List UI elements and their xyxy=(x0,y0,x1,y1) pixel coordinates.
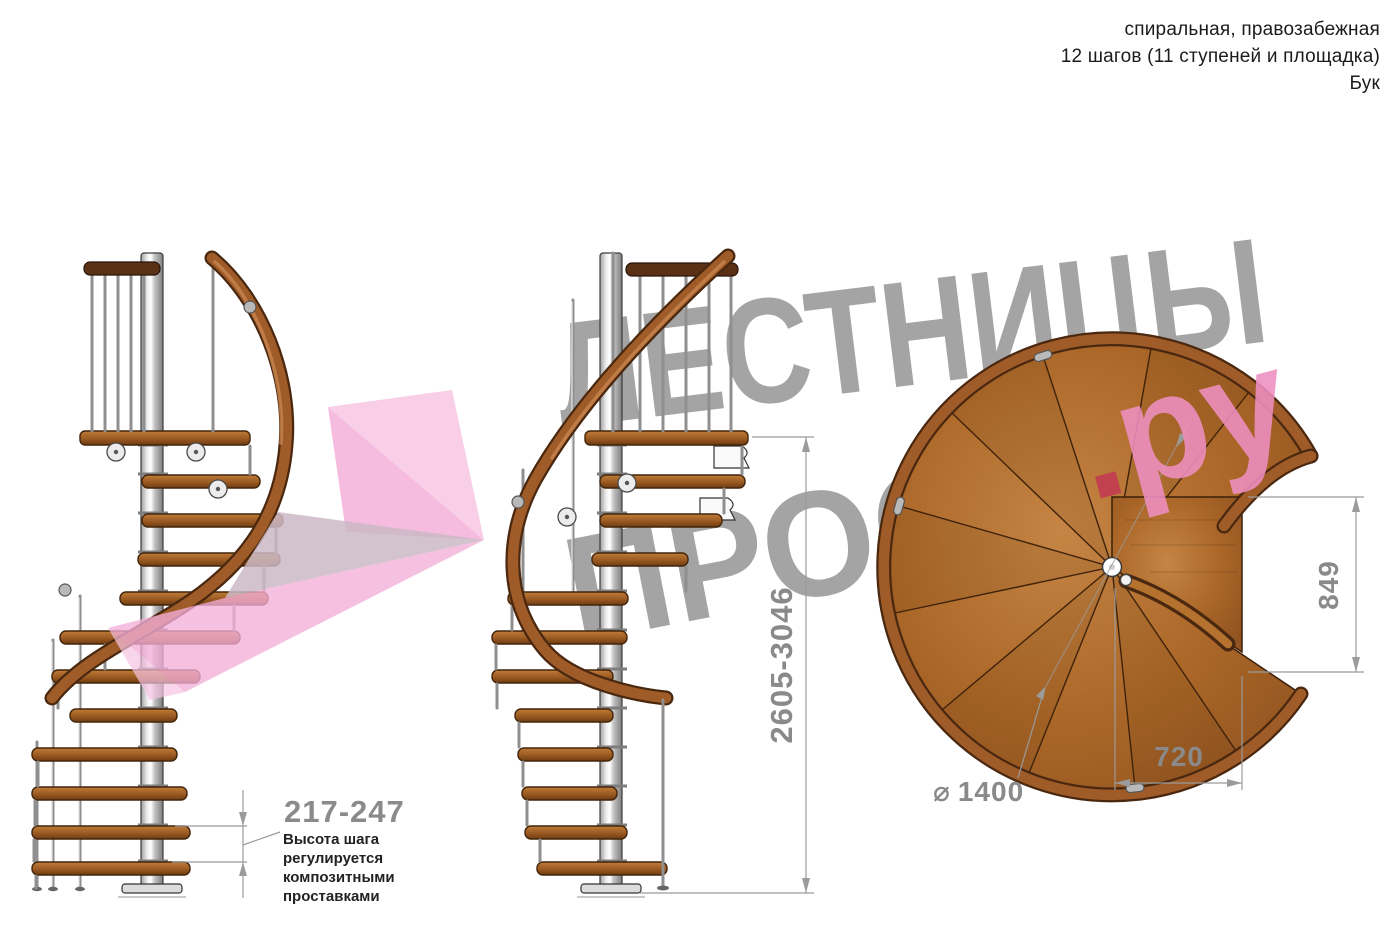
dim-platform-width-value: 720 xyxy=(1154,741,1204,772)
technical-drawing: ЛЕСТНИЦЫ ПРОСТО xyxy=(0,0,1400,930)
dim-step-height-value: 217-247 xyxy=(284,794,405,829)
plan-center-pole xyxy=(1103,558,1122,577)
dim-diameter-label: ⌀1400 xyxy=(933,776,1024,807)
spec-type: спиральная, правозабежная xyxy=(1061,16,1380,43)
spec-material: Бук xyxy=(1061,70,1380,97)
spec-header: спиральная, правозабежная 12 шагов (11 с… xyxy=(1061,16,1380,97)
step-height-note: Высота шага регулируется композитными пр… xyxy=(283,830,435,906)
dim-platform-depth: 849 xyxy=(1248,497,1364,672)
diameter-value: 1400 xyxy=(958,776,1024,807)
spec-steps: 12 шагов (11 ступеней и площадка) xyxy=(1061,43,1380,70)
dim-platform-depth-value: 849 xyxy=(1313,560,1344,610)
base-flange xyxy=(581,884,641,893)
staircase-drawing-page: ЛЕСТНИЦЫ ПРОСТО xyxy=(0,0,1400,930)
platform-handrail-bar xyxy=(84,262,160,275)
diameter-symbol: ⌀ xyxy=(933,776,951,807)
base-flange xyxy=(122,884,182,893)
dim-total-height-value: 2605-3046 xyxy=(764,586,799,743)
mounting-discs xyxy=(107,443,227,498)
